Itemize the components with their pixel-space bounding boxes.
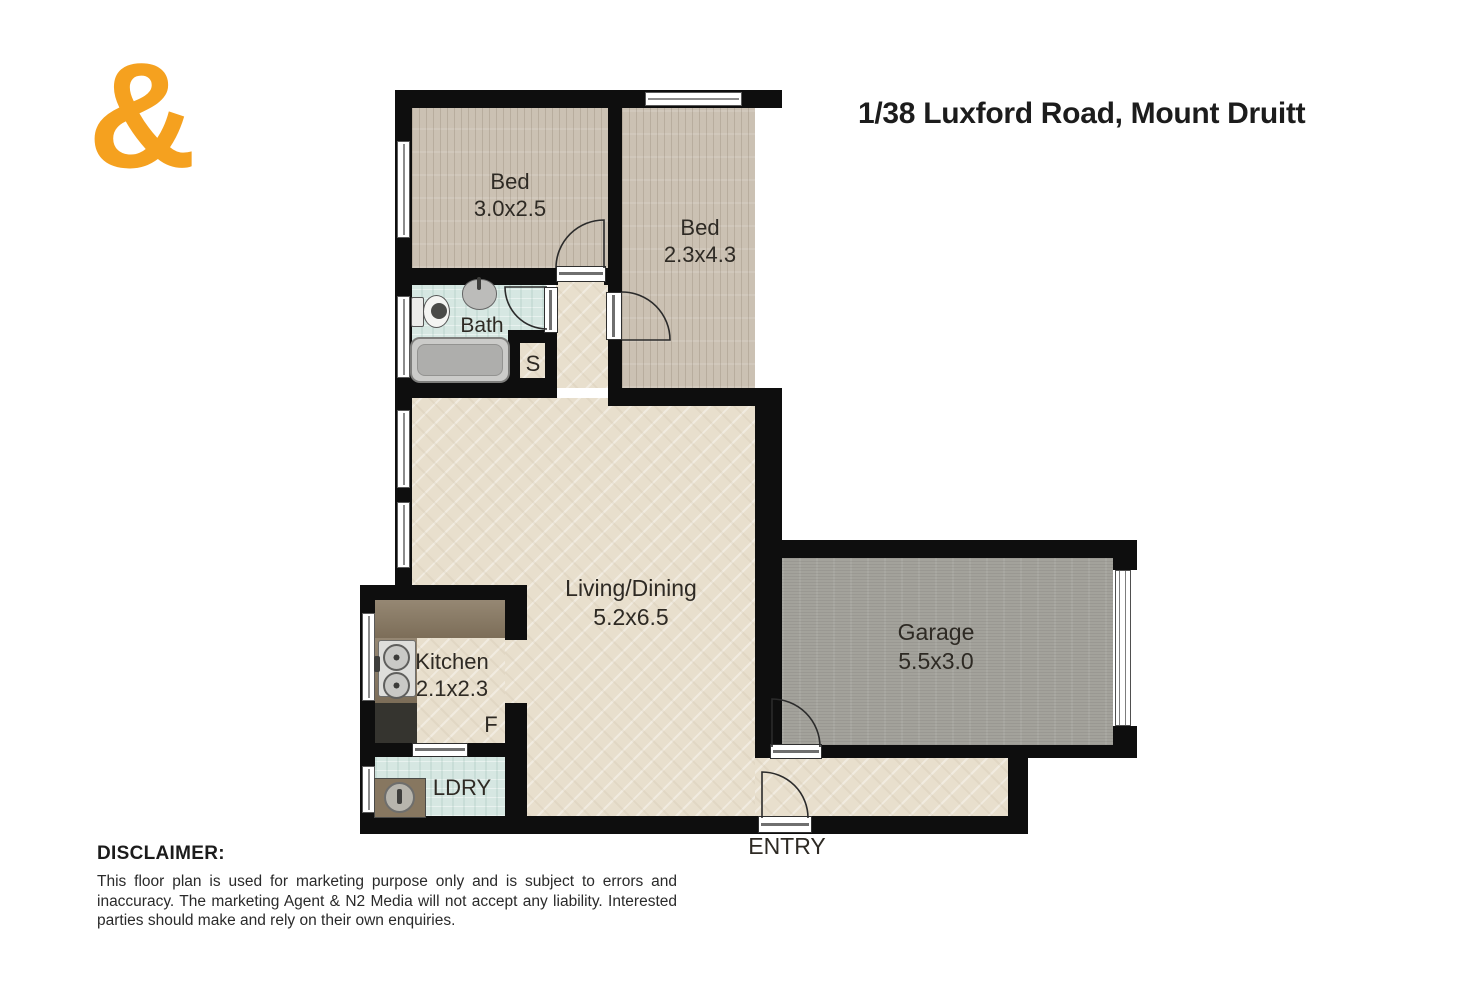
- room-name: Kitchen: [415, 648, 488, 675]
- entry-hall-floor: [755, 758, 1008, 818]
- door-sill: [544, 287, 558, 333]
- garage-label: Garage 5.5x3.0: [898, 618, 975, 676]
- wall: [545, 333, 557, 378]
- room-dims: 5.5x3.0: [898, 647, 975, 676]
- tap-icon: [477, 277, 481, 290]
- wall: [505, 585, 527, 640]
- wall: [604, 268, 622, 285]
- storage-label: S: [526, 350, 541, 377]
- cooktop-icon: [375, 703, 417, 743]
- room-name: S: [526, 350, 541, 377]
- sink-bowl-icon: [383, 672, 410, 699]
- room-name: Living/Dining: [565, 574, 697, 603]
- living-label: Living/Dining 5.2x6.5: [565, 574, 697, 632]
- room-name: Bath: [460, 312, 503, 339]
- disclaimer-body: This floor plan is used for marketing pu…: [97, 872, 677, 931]
- door-sill: [770, 744, 822, 759]
- kitchen-counter-top: [375, 600, 505, 638]
- bed1-label: Bed 3.0x2.5: [474, 168, 546, 222]
- wall: [822, 745, 1137, 758]
- window-icon: [645, 92, 742, 106]
- door-sill: [556, 266, 606, 282]
- window-icon: [397, 502, 410, 568]
- disclaimer-heading: DISCLAIMER:: [97, 843, 225, 865]
- wall: [505, 703, 527, 834]
- hallway-floor: [556, 278, 608, 388]
- bed2-label: Bed 2.3x4.3: [664, 214, 736, 268]
- wall: [755, 745, 770, 758]
- bathtub-icon: [417, 344, 503, 376]
- tap-icon: [374, 656, 380, 672]
- laundry-label: LDRY: [433, 774, 491, 801]
- room-name: ENTRY: [748, 832, 826, 861]
- room-dims: 3.0x2.5: [474, 195, 546, 222]
- wall: [360, 585, 510, 600]
- window-icon: [397, 410, 410, 488]
- wall: [1113, 540, 1137, 570]
- door-sill: [606, 292, 622, 340]
- floorplan-page: & 1/38 Luxford Road, Mount Druitt: [0, 0, 1472, 981]
- room-name: F: [484, 711, 497, 738]
- room-name: Garage: [898, 618, 975, 647]
- room-dims: 5.2x6.5: [565, 603, 697, 632]
- toilet-icon: [431, 303, 447, 319]
- room-name: Bed: [474, 168, 546, 195]
- room-dims: 2.3x4.3: [664, 241, 736, 268]
- window-icon: [397, 141, 410, 238]
- room-name: LDRY: [433, 774, 491, 801]
- fridge-label: F: [484, 711, 497, 738]
- wall: [755, 540, 1137, 558]
- floor-plan: Bed 3.0x2.5 Bed 2.3x4.3 Bath S Living/Di…: [0, 0, 1472, 981]
- room-name: Bed: [664, 214, 736, 241]
- entry-label: ENTRY: [748, 832, 826, 861]
- wall: [755, 388, 782, 745]
- garage-roller-door-icon: [1115, 570, 1131, 726]
- room-dims: 2.1x2.3: [415, 675, 488, 702]
- tap-icon: [397, 789, 402, 804]
- door-sill: [758, 816, 812, 833]
- kitchen-label: Kitchen 2.1x2.3: [415, 648, 488, 702]
- wall: [608, 340, 622, 388]
- wall: [360, 816, 1028, 834]
- bath-label: Bath: [460, 312, 503, 339]
- wall: [608, 108, 622, 292]
- sink-bowl-icon: [383, 644, 410, 671]
- window-icon: [397, 296, 410, 378]
- sliding-door-icon: [412, 743, 468, 757]
